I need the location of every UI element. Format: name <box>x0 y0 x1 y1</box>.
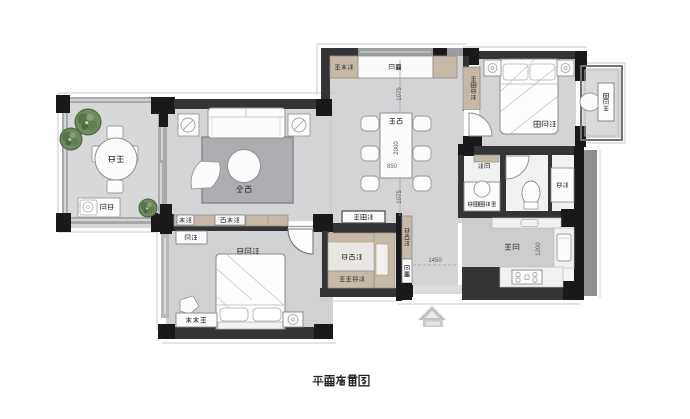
svg-text:2000: 2000 <box>394 141 400 155</box>
svg-text:1200: 1200 <box>536 242 542 256</box>
svg-text:1075: 1075 <box>397 190 403 204</box>
svg-text:1075: 1075 <box>397 87 403 101</box>
svg-text:850: 850 <box>387 164 398 170</box>
svg-text:1450: 1450 <box>428 258 442 264</box>
